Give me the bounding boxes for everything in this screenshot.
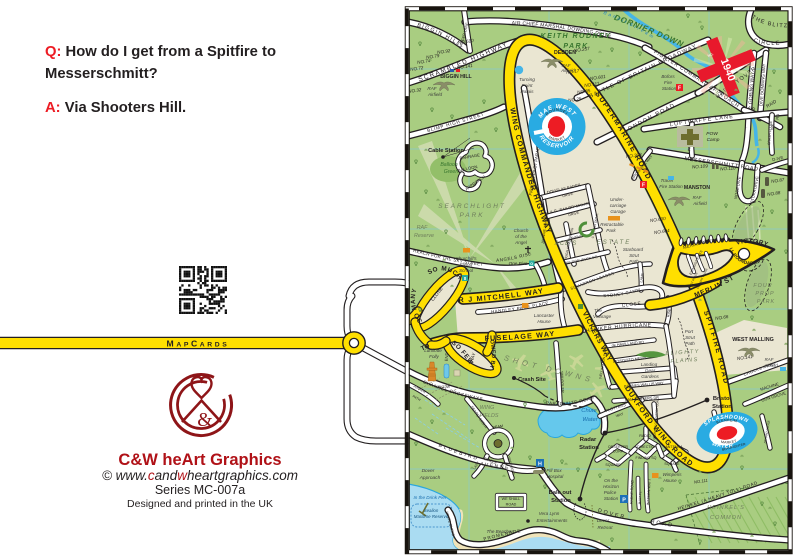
svg-text:Dover: Dover xyxy=(422,468,435,474)
svg-text:WING: WING xyxy=(480,405,495,411)
svg-text:Church: Church xyxy=(514,228,529,233)
svg-text:The: The xyxy=(594,308,602,313)
svg-text:Retractable: Retractable xyxy=(600,222,624,227)
svg-text:BIGGIN HILL: BIGGIN HILL xyxy=(440,74,472,80)
svg-text:Under-: Under- xyxy=(610,197,624,202)
svg-text:Airfield: Airfield xyxy=(560,68,575,73)
svg-text:Station: Station xyxy=(662,86,677,91)
svg-text:HEINKEL'S: HEINKEL'S xyxy=(707,505,745,511)
svg-text:Q: How do I get from a Spitfir: Q: How do I get from a Spitfire to xyxy=(45,44,276,60)
svg-text:Entertainments: Entertainments xyxy=(537,518,569,523)
svg-text:Port: Port xyxy=(685,329,694,334)
svg-text:RADIO: RADIO xyxy=(639,434,651,438)
svg-text:END: END xyxy=(444,352,450,361)
svg-text:Path: Path xyxy=(629,259,639,264)
svg-text:Starboard: Starboard xyxy=(623,247,644,252)
svg-text:Series MC-007a: Series MC-007a xyxy=(155,483,245,497)
svg-text:SQUARE: SQUARE xyxy=(664,462,680,466)
svg-text:Sealion: Sealion xyxy=(424,508,439,513)
svg-text:Point: Point xyxy=(522,83,534,89)
svg-text:Station: Station xyxy=(604,496,619,501)
svg-text:The Beaches: The Beaches xyxy=(486,529,514,534)
svg-text:Police: Police xyxy=(604,490,617,495)
svg-text:© www.candwheartgraphics.com: © www.candwheartgraphics.com xyxy=(102,468,298,483)
svg-text:WE SHALL: WE SHALL xyxy=(502,497,521,501)
svg-text:Airfield: Airfield xyxy=(692,201,707,206)
svg-text:NO.88: NO.88 xyxy=(438,384,450,389)
svg-text:Retreat: Retreat xyxy=(597,525,613,530)
svg-text:MANSTON: MANSTON xyxy=(684,185,710,191)
svg-text:Station: Station xyxy=(579,445,599,451)
svg-text:Lancaster: Lancaster xyxy=(534,313,555,318)
svg-text:Airfield: Airfield xyxy=(427,92,442,97)
svg-text:Chute: Chute xyxy=(581,408,597,414)
svg-text:Fire: Fire xyxy=(664,80,672,85)
svg-text:Maritime Reserve: Maritime Reserve xyxy=(414,514,449,519)
svg-text:PARK: PARK xyxy=(757,299,775,305)
svg-text:Airfield: Airfield xyxy=(763,363,778,368)
svg-text:ROAD: ROAD xyxy=(506,503,517,507)
svg-text:Fire Station: Fire Station xyxy=(659,184,683,189)
svg-text:Camp: Camp xyxy=(707,137,720,143)
svg-text:Churchill's: Churchill's xyxy=(455,256,477,261)
svg-text:Water: Water xyxy=(582,417,598,423)
svg-text:POW: POW xyxy=(706,131,718,137)
svg-text:In the Drink Pier: In the Drink Pier xyxy=(414,495,447,500)
svg-text:FIELDS: FIELDS xyxy=(480,413,499,419)
svg-text:Angel: Angel xyxy=(514,240,528,245)
svg-text:C&W heArt Graphics: C&W heArt Graphics xyxy=(118,451,281,469)
svg-text:ACE'S: ACE'S xyxy=(554,241,577,247)
svg-text:SEARCHLIGHT: SEARCHLIGHT xyxy=(438,203,505,210)
svg-text:Balloon: Balloon xyxy=(440,162,457,168)
svg-text:Approach: Approach xyxy=(419,475,441,481)
svg-text:Reserve: Reserve xyxy=(414,233,434,239)
svg-text:MAST PL: MAST PL xyxy=(638,491,643,504)
svg-text:On the: On the xyxy=(604,478,618,483)
svg-text:&: & xyxy=(197,409,213,431)
svg-text:House: House xyxy=(537,319,551,324)
svg-text:SQUARE: SQUARE xyxy=(605,463,621,467)
svg-text:CORP: CORP xyxy=(613,450,624,454)
svg-text:Cable Station: Cable Station xyxy=(428,148,464,154)
svg-text:Bale out: Bale out xyxy=(549,490,572,496)
svg-text:Garage: Garage xyxy=(610,209,626,214)
svg-text:RAF: RAF xyxy=(765,357,774,362)
svg-text:Station: Station xyxy=(551,498,571,504)
svg-text:ANTENNA: ANTENNA xyxy=(665,445,683,449)
svg-text:COMMON: COMMON xyxy=(710,515,742,521)
svg-text:Wimperis: Wimperis xyxy=(662,472,682,477)
svg-text:Dover: Dover xyxy=(597,518,610,523)
svg-text:Gear: Gear xyxy=(645,368,656,373)
svg-text:Vicarage: Vicarage xyxy=(593,314,611,319)
svg-text:RAF: RAF xyxy=(427,86,437,91)
svg-text:FINDING SQ: FINDING SQ xyxy=(636,456,657,460)
svg-text:Messerschmitt?: Messerschmitt? xyxy=(45,66,158,82)
svg-text:Crash Site: Crash Site xyxy=(518,377,546,383)
svg-text:Flying: Flying xyxy=(460,262,473,267)
svg-text:H: H xyxy=(538,461,542,467)
svg-text:FOUR: FOUR xyxy=(753,283,772,289)
svg-text:House: House xyxy=(663,478,677,483)
svg-text:Horizon: Horizon xyxy=(603,484,619,489)
svg-text:OBSERVER: OBSERVER xyxy=(608,445,628,449)
svg-text:Landing: Landing xyxy=(641,362,658,367)
svg-text:P: P xyxy=(622,497,626,503)
svg-text:PARK: PARK xyxy=(460,212,485,219)
svg-text:School: School xyxy=(459,268,474,273)
svg-text:Radar: Radar xyxy=(580,437,597,443)
svg-text:Path: Path xyxy=(685,341,695,346)
svg-text:Turning: Turning xyxy=(519,77,535,83)
svg-text:RAF: RAF xyxy=(693,195,702,200)
svg-text:Bofors: Bofors xyxy=(661,74,675,79)
svg-text:WEST MALLING: WEST MALLING xyxy=(732,337,774,343)
svg-text:RAF: RAF xyxy=(417,225,428,231)
svg-text:Luftflotte: Luftflotte xyxy=(424,348,442,353)
svg-text:O: O xyxy=(530,262,533,266)
svg-text:Vera Lynn: Vera Lynn xyxy=(539,511,560,516)
svg-text:DEBDEN: DEBDEN xyxy=(554,50,576,56)
svg-text:F: F xyxy=(642,183,645,189)
svg-text:Bristol: Bristol xyxy=(713,396,732,402)
svg-text:One Five: One Five xyxy=(509,261,528,266)
svg-text:Hospital: Hospital xyxy=(547,474,565,479)
svg-text:DIRECTION: DIRECTION xyxy=(637,445,657,449)
svg-text:Palais: Palais xyxy=(520,89,534,95)
svg-text:Park: Park xyxy=(606,228,616,233)
svg-text:PROP: PROP xyxy=(755,291,774,297)
svg-text:F: F xyxy=(678,86,681,92)
svg-text:of the: of the xyxy=(515,234,527,239)
svg-text:Green: Green xyxy=(444,169,459,175)
svg-text:KEITH RODNEY: KEITH RODNEY xyxy=(541,33,612,40)
svg-text:Station: Station xyxy=(712,404,732,410)
svg-text:RD: RD xyxy=(775,113,781,120)
svg-text:Gardens: Gardens xyxy=(641,374,659,379)
svg-text:Designed and printed in the UK: Designed and printed in the UK xyxy=(127,498,273,510)
svg-text:Strut: Strut xyxy=(629,253,639,258)
svg-text:Strut: Strut xyxy=(685,335,695,340)
svg-text:A: Via Shooters Hill.: A: Via Shooters Hill. xyxy=(45,100,186,116)
svg-text:Folly: Folly xyxy=(429,354,439,359)
svg-text:carriage: carriage xyxy=(610,203,627,208)
